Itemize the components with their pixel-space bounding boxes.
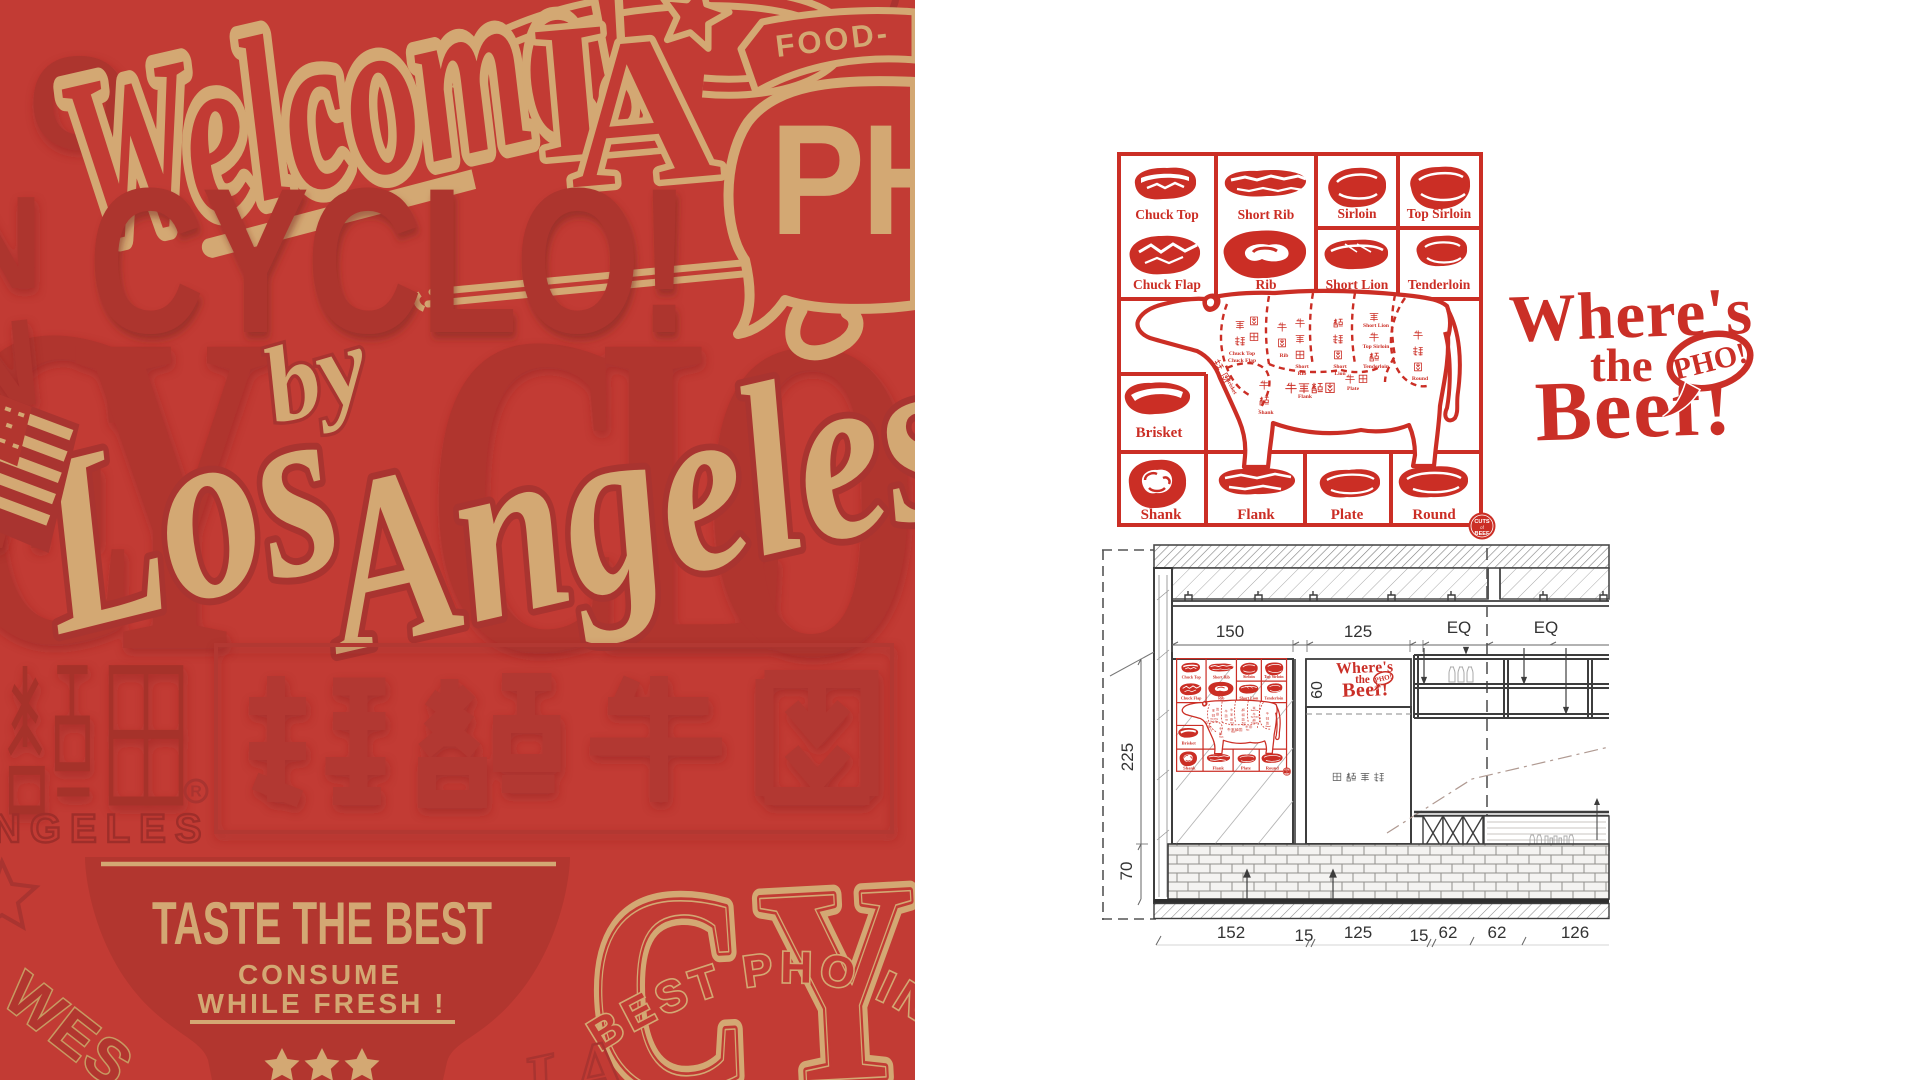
svg-text:62: 62	[1488, 923, 1507, 942]
svg-text:152: 152	[1217, 923, 1245, 942]
svg-text:NGELES: NGELES	[0, 807, 210, 851]
svg-text:125: 125	[1344, 923, 1372, 942]
svg-text:EQ: EQ	[1534, 618, 1559, 637]
svg-text:126: 126	[1561, 923, 1589, 942]
svg-text:70: 70	[1117, 862, 1136, 881]
svg-text:PH: PH	[770, 91, 960, 267]
svg-text:WHILE FRESH !: WHILE FRESH !	[198, 988, 447, 1019]
svg-text:60: 60	[1309, 681, 1326, 699]
svg-text:15: 15	[1295, 926, 1314, 945]
svg-text:62: 62	[1439, 923, 1458, 942]
svg-text:15: 15	[1410, 926, 1429, 945]
svg-text:125: 125	[1344, 622, 1372, 641]
svg-text:EQ: EQ	[1447, 618, 1472, 637]
svg-text:225: 225	[1118, 743, 1137, 771]
svg-text:150: 150	[1216, 622, 1244, 641]
svg-text:TASTE THE BEST: TASTE THE BEST	[152, 890, 492, 957]
svg-text:R: R	[190, 784, 202, 801]
svg-text:CYC: CYC	[583, 815, 1108, 1080]
svg-text:CONSUME: CONSUME	[238, 959, 402, 990]
svg-text:CYCLO!: CYCLO!	[88, 146, 688, 377]
